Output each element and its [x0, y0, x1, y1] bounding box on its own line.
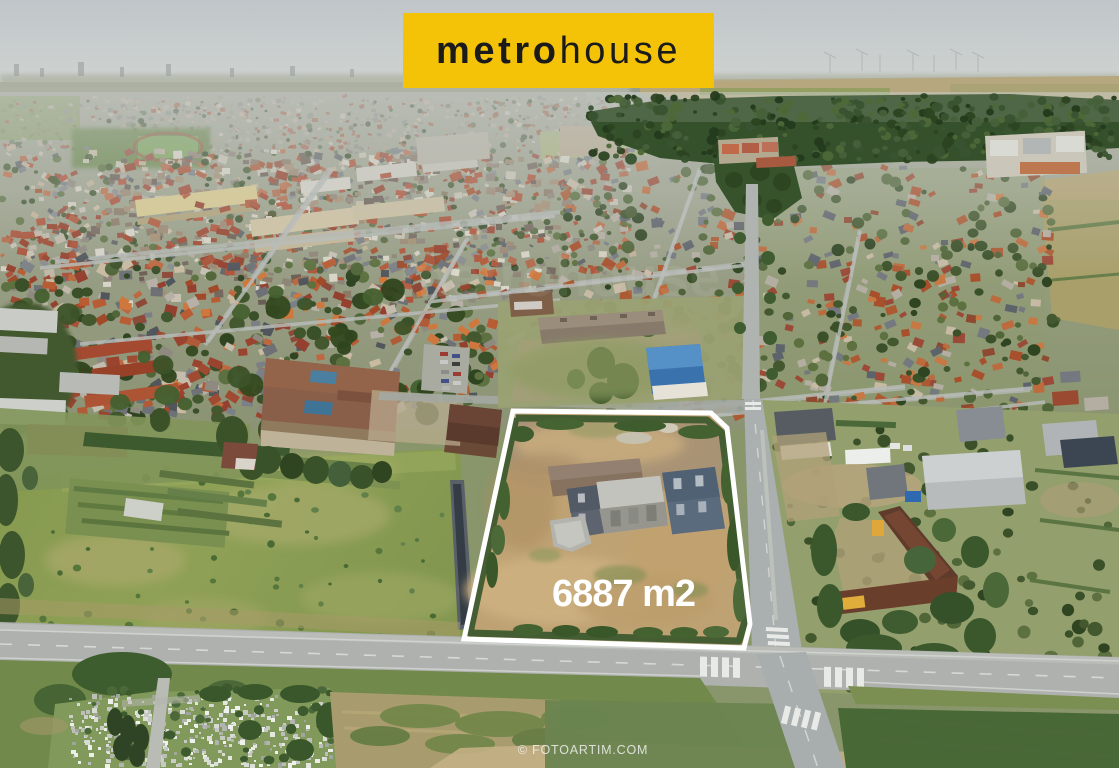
svg-text:© FOTOARTIM.COM: © FOTOARTIM.COM — [518, 743, 648, 757]
svg-text:metrohouse: metrohouse — [400, 245, 721, 308]
svg-text:6887 m2: 6887 m2 — [552, 573, 695, 615]
svg-text:metrohouse: metrohouse — [436, 30, 681, 72]
